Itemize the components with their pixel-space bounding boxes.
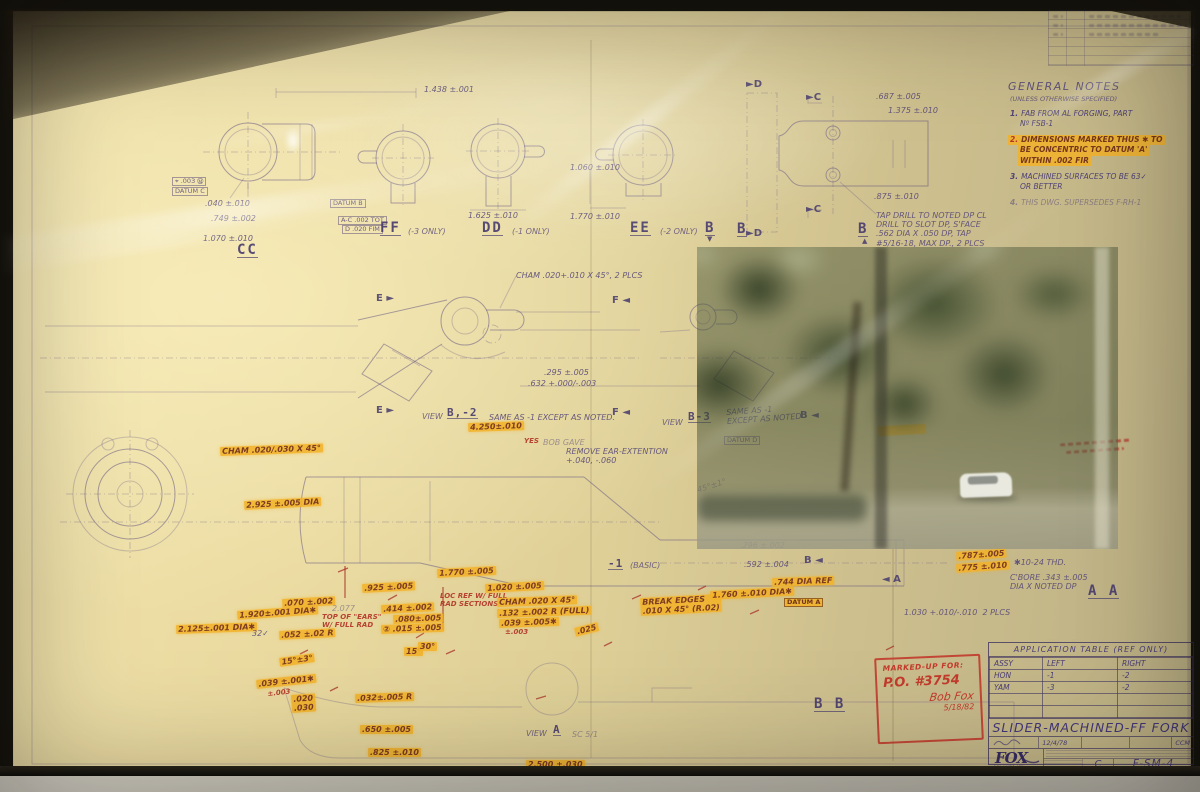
dimension-label: .040 ±.010 <box>205 199 250 208</box>
highlighted-dimension: .039 ±.005✱ <box>499 617 559 628</box>
application-table-row <box>990 694 1193 706</box>
dimension-label: 2.077 <box>332 604 355 613</box>
drawing-title: SLIDER-MACHINED-FF FORK <box>989 718 1193 737</box>
highlighted-dimension: CHAM .020/.030 X 45° <box>220 443 323 456</box>
dimension-label: 1.030 +.010/-.010 2 PLCS <box>904 608 1010 617</box>
datum-box: ⌖ .003 Ⓜ <box>172 177 206 186</box>
dimension-label: .592 ±.004 <box>744 560 789 569</box>
fox-logo: FOX FACTORY INC. <box>989 749 1044 770</box>
application-table-cell <box>1043 706 1118 718</box>
title-block-bottom: FOX FACTORY INC. C F-SM-4 <box>989 749 1193 770</box>
highlighted-dimension: 2.500 ±.030 <box>526 760 585 769</box>
application-table-cell: -2 <box>1118 682 1193 694</box>
red-markup-note: YES <box>524 437 539 445</box>
dimension-label: SC 5/1 <box>572 730 598 739</box>
dimension-label: ✱10-24 THD. <box>1014 558 1066 567</box>
red-markup-note: ±.003 <box>505 628 528 636</box>
section-flag: F ◄ <box>612 296 630 306</box>
title-block: APPLICATION TABLE (REF ONLY) ASSYLEFTRIG… <box>988 642 1194 765</box>
application-table-header: ASSY <box>990 658 1043 670</box>
shrubs-reflection <box>697 495 867 521</box>
proprietary-notice <box>1046 750 1191 757</box>
general-note-item: 1.FAB FROM AL FORGING, PARTNº FSB-1 <box>1008 109 1192 129</box>
stamp-line1: MARKED-UP FOR: <box>882 660 972 673</box>
application-table-cell: -1 <box>1043 670 1118 682</box>
dimension-label: 1.375 ±.010 <box>888 106 938 115</box>
dimension-label: .632 +.000/-.003 <box>528 379 596 388</box>
dimension-label: REMOVE EAR-EXTENTION +.040, -.060 <box>566 447 668 465</box>
red-markup-note: TOP OF "EARS" W/ FULL RAD <box>322 613 381 629</box>
fox-logo-swoosh <box>989 749 1043 770</box>
window-pane-divider <box>875 247 887 549</box>
highlighted-dimension: .032±.005 R <box>355 692 414 703</box>
highlighted-dimension: .650 ±.005 <box>360 725 413 734</box>
general-notes-title: GENERAL NOTES <box>1008 80 1192 93</box>
datum-box-highlighted: DATUM A <box>784 598 823 607</box>
framed-blueprint-photo: 1.438 ±.001⌖ .003 ⓂDATUM C.040 ±.010.749… <box>0 0 1200 792</box>
application-table-cell: -3 <box>1043 682 1118 694</box>
signature-row: 12/4/78 CCM <box>989 737 1193 749</box>
application-table-cell <box>1043 694 1118 706</box>
dimension-label: CHAM .020+.010 X 45°, 2 PLCS <box>516 271 642 280</box>
highlighted-dimension: CHAM .020 X 45° <box>497 595 577 607</box>
highlighted-dimension: 30° <box>418 642 437 651</box>
dimension-label: .749 ±.002 <box>211 214 256 223</box>
highlighted-dimension: 15°±3° <box>279 653 315 667</box>
view-stencil-small: A <box>553 724 561 736</box>
general-notes-subtitle: (UNLESS OTHERWISE SPECIFIED) <box>1010 95 1192 103</box>
section-flag: ◄ A <box>882 575 901 585</box>
application-table-row: YAM-3-2 <box>990 682 1193 694</box>
application-table-cell: YAM <box>990 682 1043 694</box>
application-table-cell: -2 <box>1118 670 1193 682</box>
title-block-right: C F-SM-4 <box>1044 749 1193 770</box>
stamp-po-number: P.O. #3754 <box>883 672 974 691</box>
number-row: C F-SM-4 <box>1044 758 1193 770</box>
highlighted-dimension: ② .015 ±.005 <box>381 623 444 634</box>
view-stencil-label: B B <box>814 697 845 712</box>
application-table-row: HON-1-2 <box>990 670 1193 682</box>
view-note: (BASIC) <box>630 561 660 570</box>
dimension-label: C'BORE .343 ±.005 DIA X NOTED DP <box>1010 573 1088 591</box>
application-table: ASSYLEFTRIGHT HON-1-2YAM-3-2 <box>989 657 1193 718</box>
highlighted-dimension: .132 ±.002 R (FULL) <box>497 606 591 618</box>
general-notes: GENERAL NOTES (UNLESS OTHERWISE SPECIFIE… <box>1008 80 1192 214</box>
view-stencil-small: -1 <box>608 558 623 570</box>
view-stencil-label: CC <box>237 243 258 258</box>
highlighted-dimension: 2.925 ±.005 DIA <box>244 497 322 510</box>
application-table-cell <box>1118 694 1193 706</box>
view-stencil-small: B,-2 <box>447 407 478 419</box>
po-markup-stamp: MARKED-UP FOR: P.O. #3754 Bob Fox 5/18/8… <box>874 654 984 745</box>
highlighted-dimension: .787±.005 <box>956 548 1007 561</box>
view-note: VIEW <box>662 418 683 427</box>
highlighted-dimension: .775 ±.010 <box>956 560 1009 573</box>
highlighted-dimension: .925 ±.005 <box>362 581 415 593</box>
application-table-cell <box>1118 706 1193 718</box>
revision-letter: C <box>1083 759 1114 770</box>
highlighted-dimension: .025 <box>574 622 599 637</box>
datum-box: DATUM C <box>172 187 208 196</box>
highlighted-dimension: 4.250±.010 <box>468 421 524 432</box>
dimension-label: .295 ±.005 <box>544 368 589 377</box>
highlighted-dimension: .414 ±.002 <box>381 602 434 614</box>
highlighted-dimension: 1.760 ±.010 DIA✱ <box>710 587 794 601</box>
highlighted-dimension: 2.125±.001 DIA✱ <box>176 622 257 634</box>
window-reflection <box>697 247 1118 549</box>
approved-cell: CCM <box>1172 737 1193 748</box>
view-note: VIEW <box>526 729 547 738</box>
highlighted-dimension: 1.920±.001 DIA✱ <box>237 605 318 620</box>
application-table-title: APPLICATION TABLE (REF ONLY) <box>989 643 1193 657</box>
section-flag: E ► <box>376 406 394 416</box>
white-car-reflection <box>960 472 1013 498</box>
application-table-cell <box>990 706 1043 718</box>
application-table-row <box>990 706 1193 718</box>
highlighted-dimension: .825 ±.010 <box>368 748 421 757</box>
section-flag: B ◄ <box>804 556 823 566</box>
drawing-number: F-SM-4 <box>1114 759 1193 770</box>
drawn-cell <box>989 737 1039 748</box>
revision-table <box>1048 10 1194 66</box>
address-cell <box>1044 759 1083 770</box>
highlighted-dimension: .744 DIA REF <box>772 576 835 587</box>
section-flag: E ► <box>376 294 394 304</box>
red-markup-note: ±.003 <box>267 688 291 698</box>
light-glare-spot <box>284 127 302 154</box>
view-stencil-label: A A <box>1088 584 1119 599</box>
scale-cell <box>1130 737 1172 748</box>
application-table-header-row: ASSYLEFTRIGHT <box>990 658 1193 670</box>
light-wash <box>330 40 890 240</box>
date-cell: 12/4/78 <box>1039 737 1081 748</box>
application-table-cell: HON <box>990 670 1043 682</box>
highlighted-dimension: .070 ±.002 <box>282 596 335 608</box>
application-table-header: LEFT <box>1043 658 1118 670</box>
highlighted-dimension: 1.020 ±.005 <box>485 581 544 593</box>
dimension-label: TAP DRILL TO NOTED DP CL DRILL TO SLOT D… <box>876 211 987 248</box>
highlighted-dimension: .020 .030 <box>291 693 316 713</box>
general-note-item: 3.MACHINED SURFACES TO BE 63✓OR BETTER <box>1008 172 1192 192</box>
highlighted-dimension: 1.770 ±.005 <box>437 566 496 578</box>
general-notes-list: 1.FAB FROM AL FORGING, PARTNº FSB-12.DIM… <box>1008 109 1192 208</box>
application-table-header: RIGHT <box>1118 658 1193 670</box>
dimension-label: BOB GAVE <box>543 438 585 447</box>
application-table-cell <box>990 694 1043 706</box>
view-note: VIEW <box>422 412 443 421</box>
checked-cell <box>1082 737 1130 748</box>
highlighted-dimension: .039 ±.001✱ <box>256 674 316 689</box>
window-pane-edge <box>1095 247 1109 549</box>
general-note-item: 4.THIS DWG. SUPERSEDES F-RH-1 <box>1008 198 1192 208</box>
general-note-item: 2.DIMENSIONS MARKED THUS ✱ TOBE CONCENTR… <box>1008 135 1192 165</box>
drawn-signature <box>992 739 1022 747</box>
highlighted-dimension: .052 ±.02 R <box>279 628 336 640</box>
dimension-label: 32✓ <box>252 629 269 638</box>
